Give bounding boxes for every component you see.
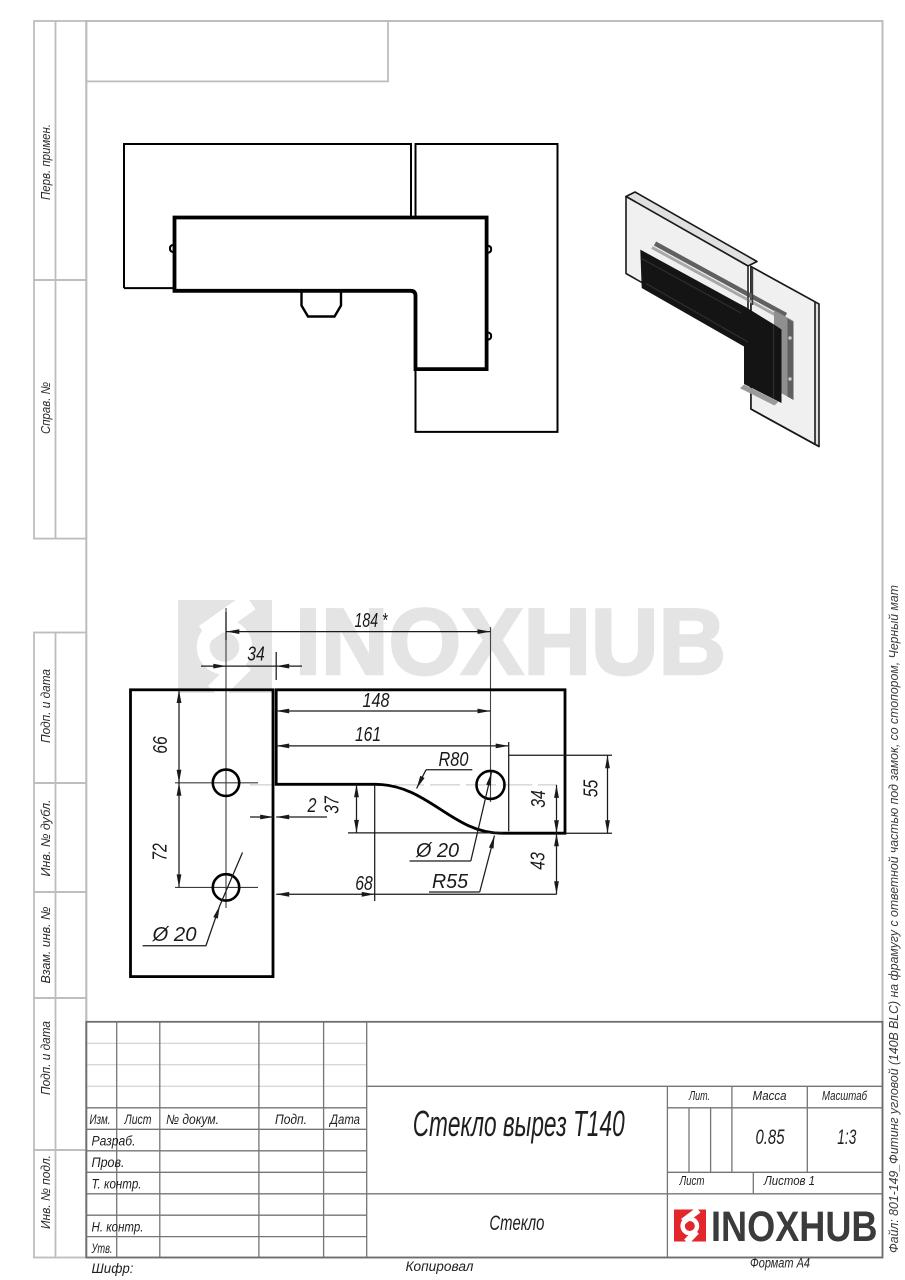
svg-text:Копировал: Копировал bbox=[406, 1259, 474, 1274]
svg-text:55: 55 bbox=[581, 779, 603, 797]
svg-text:R55: R55 bbox=[432, 871, 469, 893]
svg-text:Н. контр.: Н. контр. bbox=[92, 1220, 144, 1235]
svg-text:INOXHUB: INOXHUB bbox=[711, 1204, 878, 1251]
svg-text:43: 43 bbox=[528, 852, 550, 870]
svg-text:Утв.: Утв. bbox=[91, 1241, 113, 1256]
svg-text:1:3: 1:3 bbox=[837, 1126, 856, 1149]
svg-text:Стекло вырез Т140: Стекло вырез Т140 bbox=[413, 1103, 625, 1144]
svg-text:Лист: Лист bbox=[679, 1174, 705, 1188]
svg-text:Файл: 801-149_Фитинг угловой (: Файл: 801-149_Фитинг угловой (140В BLC) … bbox=[887, 585, 901, 1253]
svg-text:0.85: 0.85 bbox=[756, 1126, 785, 1149]
svg-text:Справ. №: Справ. № bbox=[38, 382, 53, 434]
svg-text:68: 68 bbox=[355, 873, 373, 895]
svg-text:148: 148 bbox=[363, 690, 390, 712]
svg-text:R80: R80 bbox=[439, 749, 469, 771]
svg-text:Перв. примен.: Перв. примен. bbox=[38, 124, 53, 200]
svg-text:INOXHUB: INOXHUB bbox=[295, 589, 726, 694]
svg-text:Лист: Лист bbox=[124, 1112, 152, 1127]
svg-text:2: 2 bbox=[307, 795, 317, 817]
svg-text:Формат А4: Формат А4 bbox=[750, 1256, 810, 1271]
svg-text:Разраб.: Разраб. bbox=[92, 1134, 136, 1149]
svg-text:Ø 20: Ø 20 bbox=[415, 840, 459, 862]
svg-text:66: 66 bbox=[150, 736, 172, 754]
svg-text:Масса: Масса bbox=[753, 1089, 787, 1103]
svg-text:Стекло: Стекло bbox=[489, 1212, 544, 1235]
svg-text:Пров.: Пров. bbox=[92, 1155, 125, 1170]
svg-text:Инв. № подл.: Инв. № подл. bbox=[38, 1155, 53, 1229]
svg-text:Лит.: Лит. bbox=[688, 1089, 710, 1103]
svg-text:Изм.: Изм. bbox=[90, 1112, 111, 1127]
svg-text:Масштаб: Масштаб bbox=[822, 1089, 868, 1103]
svg-text:72: 72 bbox=[150, 843, 172, 861]
svg-text:34: 34 bbox=[528, 790, 550, 808]
svg-text:Дата: Дата bbox=[328, 1112, 360, 1127]
svg-text:Листов 1: Листов 1 bbox=[763, 1174, 815, 1188]
svg-text:Подп. и дата: Подп. и дата bbox=[38, 1021, 53, 1095]
svg-text:Шифр:: Шифр: bbox=[92, 1261, 134, 1276]
svg-text:Т. контр.: Т. контр. bbox=[92, 1177, 142, 1192]
svg-text:№ докум.: № докум. bbox=[166, 1112, 219, 1127]
svg-text:Подп.: Подп. bbox=[275, 1112, 307, 1127]
svg-text:Ø 20: Ø 20 bbox=[151, 924, 196, 946]
svg-text:161: 161 bbox=[355, 724, 381, 746]
svg-text:Инв. № дубл.: Инв. № дубл. bbox=[38, 800, 53, 877]
svg-text:184 *: 184 * bbox=[355, 610, 389, 632]
svg-text:Подп. и дата: Подп. и дата bbox=[38, 669, 53, 743]
svg-text:37: 37 bbox=[322, 796, 344, 814]
svg-text:34: 34 bbox=[247, 643, 265, 665]
svg-text:Взам. инв. №: Взам. инв. № bbox=[38, 907, 53, 984]
